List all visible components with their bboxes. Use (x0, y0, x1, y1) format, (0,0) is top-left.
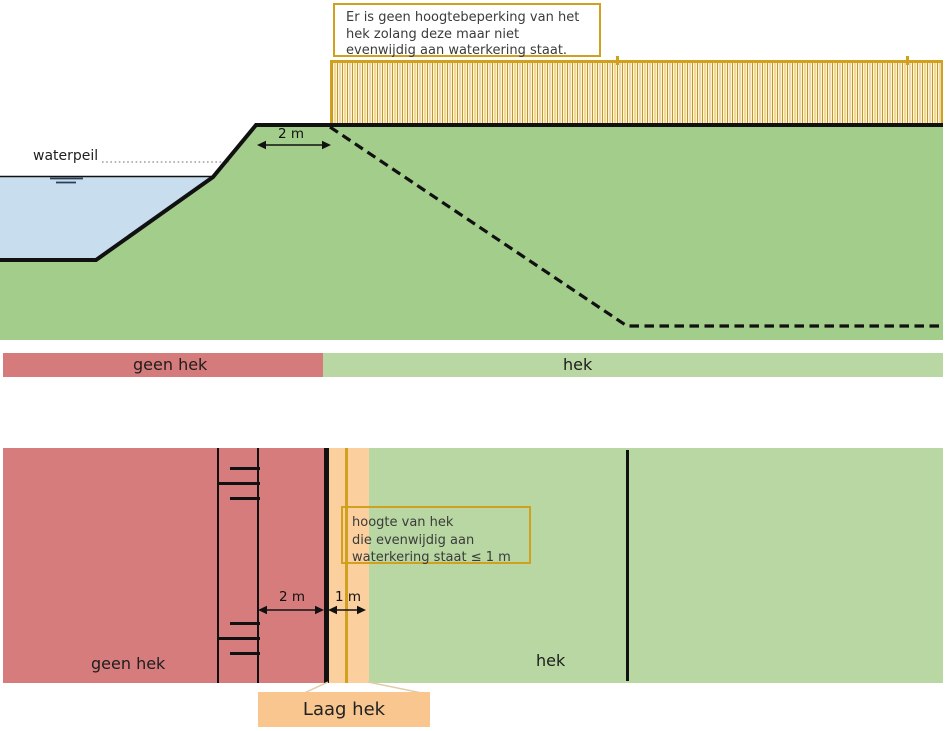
plan-fence-label: hek (536, 651, 565, 670)
note-no-height-limit: Er is geen hoogtebeperking van het hek z… (333, 3, 601, 57)
stairs-rung (230, 497, 260, 500)
plan-dimension-arrows (3, 598, 403, 623)
note-line: evenwijdig aan waterkering staat. (346, 43, 593, 60)
note-line: die evenwijdig aan (352, 532, 525, 550)
low-fence-callout: Laag hek (258, 692, 430, 727)
stairs-rung (230, 652, 260, 655)
low-fence-line (345, 448, 348, 683)
waterpeil-label: waterpeil (33, 148, 98, 164)
plan-view: hoogte van hek die evenwijdig aan waterk… (3, 448, 943, 683)
note-line: hek zolang deze maar niet (346, 27, 593, 44)
fence-post-icon (906, 56, 909, 65)
zone-bar-fence (323, 353, 943, 377)
crest-boundary-line (324, 448, 329, 683)
zone-bar: geen hek hek (3, 353, 943, 377)
note-line: waterkering staat ≤ 1 m (352, 549, 525, 567)
stairs-rung (217, 482, 260, 485)
zone-bar-fence-label: hek (563, 355, 592, 374)
fence-hatch (330, 60, 943, 123)
plan-no-fence-zone (3, 448, 324, 683)
stairs-rung (230, 467, 260, 470)
plan-crest-width-arrow (258, 606, 324, 614)
fence-post-icon (616, 56, 619, 65)
callout-leader-lines (0, 681, 945, 695)
plan-strip-width-arrow (328, 606, 366, 614)
note-line: hoogte van hek (352, 514, 525, 532)
dike-fence-rules-diagram: Er is geen hoogtebeperking van het hek z… (0, 0, 945, 731)
dike-body-shape (0, 126, 943, 340)
zone-bar-no-fence-label: geen hek (133, 355, 207, 374)
low-fence-callout-label: Laag hek (303, 699, 385, 720)
inner-boundary-line (626, 450, 629, 681)
crest-width-label: 2 m (266, 126, 316, 142)
note-fence-height-limit: hoogte van hek die evenwijdig aan waterk… (341, 506, 531, 564)
note-line: Er is geen hoogtebeperking van het (346, 10, 593, 27)
plan-no-fence-label: geen hek (91, 654, 165, 673)
stairs-rung (217, 637, 260, 640)
